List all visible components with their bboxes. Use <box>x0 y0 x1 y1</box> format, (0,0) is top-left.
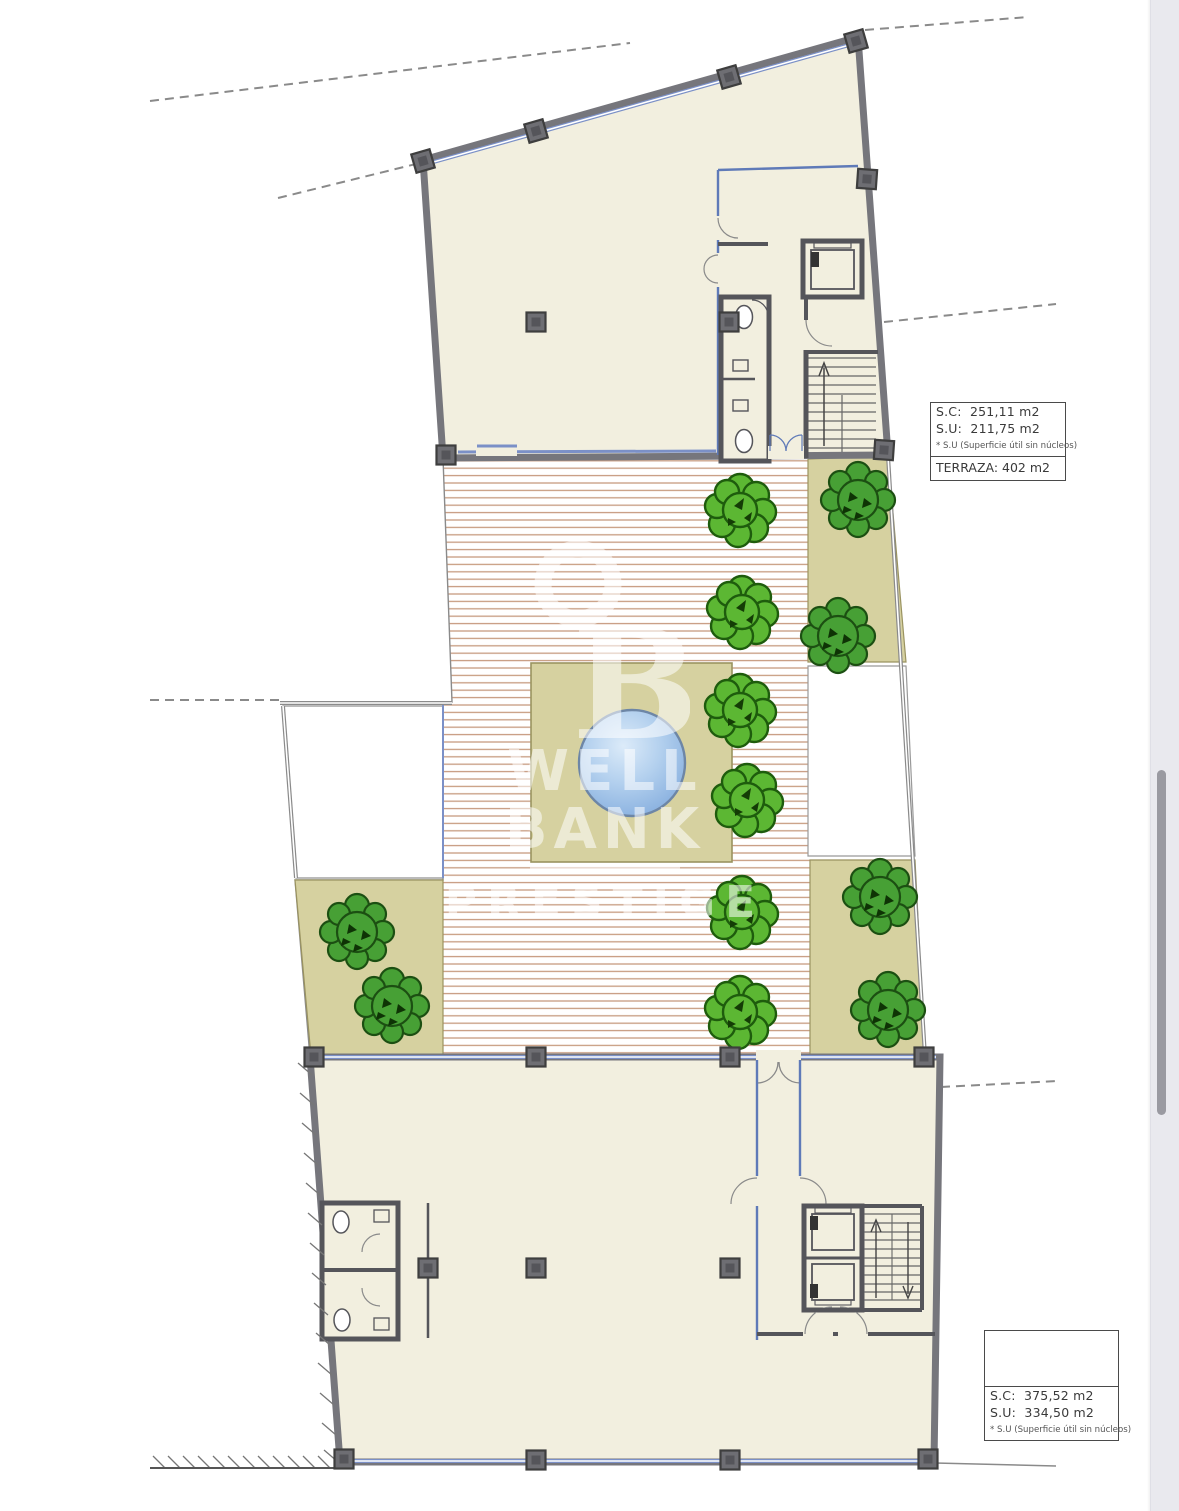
column-marker <box>527 1451 546 1470</box>
column-marker <box>721 1451 740 1470</box>
column-marker <box>527 1048 546 1067</box>
shrub-icon <box>843 859 917 934</box>
column-marker <box>419 1259 438 1278</box>
pool <box>579 710 685 816</box>
terrace <box>280 455 925 1057</box>
floor-plan-drawing <box>0 0 1179 1511</box>
upper-su-label: S.U: 211,75 m2 <box>931 420 1065 437</box>
upper-sc-label: S.C: 251,11 m2 <box>931 403 1065 420</box>
lower-su-note: * S.U (Superficie útil sin núcleos) <box>985 1421 1118 1440</box>
shrub-icon <box>355 968 429 1043</box>
ground-hatching <box>153 1063 338 1468</box>
upper-floor <box>423 37 888 461</box>
column-marker <box>844 29 868 53</box>
void-right <box>808 666 915 856</box>
scrollbar-track[interactable] <box>1150 0 1179 1511</box>
column-marker <box>411 149 435 173</box>
column-marker <box>857 169 877 189</box>
lower-sc-label: S.C: 375,52 m2 <box>985 1387 1118 1404</box>
column-marker <box>305 1048 324 1067</box>
column-marker <box>437 446 456 465</box>
terrace-area-label: TERRAZA: 402 m2 <box>931 456 1065 480</box>
column-marker <box>915 1048 934 1067</box>
plot-edge-right-bottom <box>935 1463 1056 1466</box>
scrollbar-thumb[interactable] <box>1157 770 1166 1115</box>
shrub-icon <box>851 972 925 1047</box>
lower-elevators <box>804 1206 862 1310</box>
shrub-icon <box>320 894 394 969</box>
column-marker <box>527 1259 546 1278</box>
void-left <box>283 706 443 878</box>
area-summary-upper: S.C: 251,11 m2 S.U: 211,75 m2 * S.U (Sup… <box>930 402 1066 481</box>
shrub-icon <box>821 462 895 537</box>
area-summary-lower: S.C: 375,52 m2 S.U: 334,50 m2 * S.U (Sup… <box>984 1330 1119 1441</box>
upper-elevator <box>803 241 862 297</box>
column-marker <box>717 65 741 89</box>
lower-su-label: S.U: 334,50 m2 <box>985 1404 1118 1421</box>
column-marker <box>524 119 548 143</box>
column-marker <box>720 313 739 332</box>
empty-compartment <box>985 1331 1118 1387</box>
column-marker <box>919 1450 938 1469</box>
column-marker <box>335 1450 354 1469</box>
column-marker <box>874 440 894 460</box>
shrub-icon <box>801 598 875 673</box>
upper-su-note: * S.U (Superficie útil sin núcleos) <box>931 437 1065 456</box>
column-marker <box>527 313 546 332</box>
lower-bathroom <box>322 1203 398 1339</box>
column-marker <box>721 1259 740 1278</box>
column-marker <box>721 1048 740 1067</box>
